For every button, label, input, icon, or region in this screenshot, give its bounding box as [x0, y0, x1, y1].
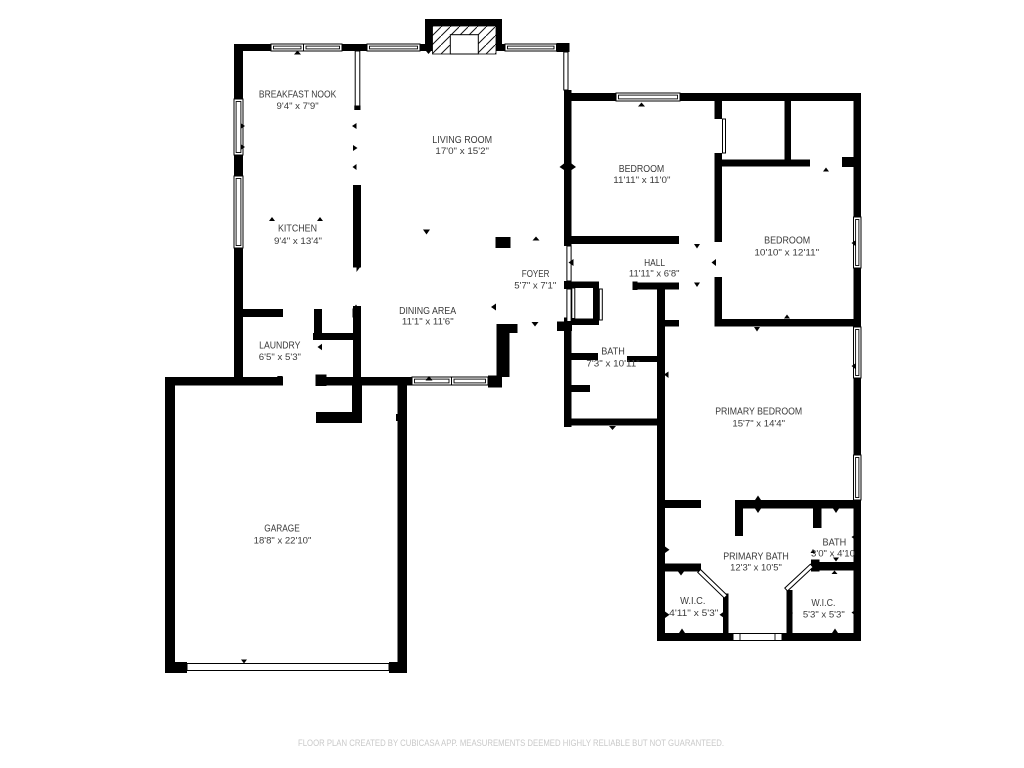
svg-text:6'5" x 5'3": 6'5" x 5'3" — [259, 351, 301, 362]
svg-text:FLOOR PLAN CREATED BY CUBICASA: FLOOR PLAN CREATED BY CUBICASA APP. MEAS… — [298, 738, 724, 748]
svg-text:9'4" x 13'4": 9'4" x 13'4" — [274, 235, 322, 246]
svg-text:BREAKFAST NOOK: BREAKFAST NOOK — [259, 89, 337, 100]
svg-text:BEDROOM: BEDROOM — [764, 236, 810, 247]
svg-text:3'0" x 4'10: 3'0" x 4'10 — [811, 548, 855, 559]
svg-text:PRIMARY BEDROOM: PRIMARY BEDROOM — [715, 407, 802, 418]
svg-text:LIVING ROOM: LIVING ROOM — [432, 135, 492, 146]
svg-text:12'3" x 10'5": 12'3" x 10'5" — [730, 561, 782, 572]
svg-text:GARAGE: GARAGE — [264, 524, 300, 535]
svg-text:BATH: BATH — [601, 347, 625, 358]
svg-text:18'8" x 22'10": 18'8" x 22'10" — [254, 534, 312, 545]
svg-text:10'10" x 12'11": 10'10" x 12'11" — [754, 246, 819, 257]
svg-text:W.I.C.: W.I.C. — [680, 596, 705, 607]
svg-text:FOYER: FOYER — [522, 269, 550, 280]
svg-text:11'11" x 6'8": 11'11" x 6'8" — [629, 267, 680, 278]
svg-text:7'3" x 10'11": 7'3" x 10'11" — [586, 358, 639, 369]
svg-text:17'0" x 15'2": 17'0" x 15'2" — [435, 145, 489, 156]
svg-text:5'7" x 7'1": 5'7" x 7'1" — [514, 280, 556, 291]
svg-text:5'3" x 5'3": 5'3" x 5'3" — [803, 609, 845, 620]
svg-text:4'11" x 5'3": 4'11" x 5'3" — [669, 607, 718, 618]
svg-text:LAUNDRY: LAUNDRY — [259, 340, 300, 351]
svg-text:11'1" x 11'6": 11'1" x 11'6" — [402, 315, 454, 326]
svg-text:KITCHEN: KITCHEN — [278, 224, 317, 235]
svg-text:9'4" x 7'9": 9'4" x 7'9" — [277, 100, 319, 111]
svg-text:15'7" x 14'4": 15'7" x 14'4" — [732, 417, 785, 428]
svg-text:W.I.C.: W.I.C. — [811, 598, 835, 609]
svg-text:11'11" x 11'0": 11'11" x 11'0" — [613, 174, 670, 185]
